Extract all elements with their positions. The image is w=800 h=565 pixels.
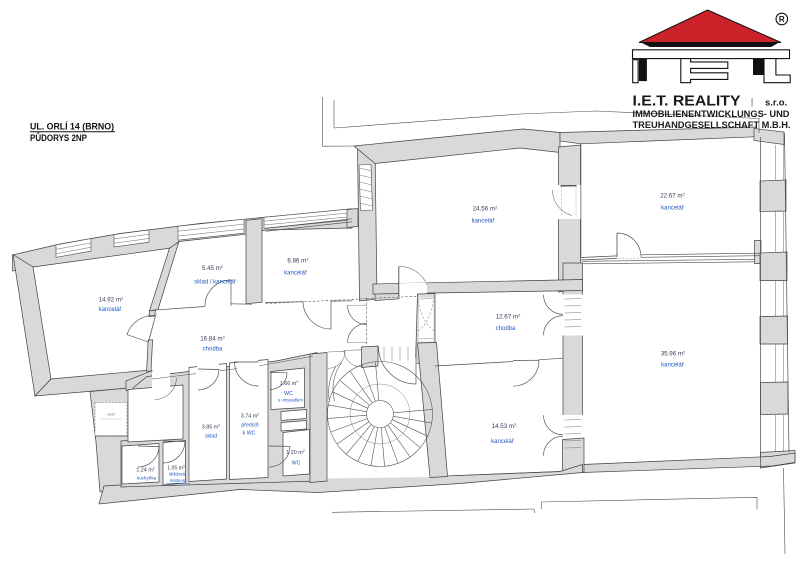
svg-text:WC: WC xyxy=(284,391,293,397)
svg-text:kuchyňka: kuchyňka xyxy=(137,476,157,481)
svg-text:úklidová: úklidová xyxy=(169,472,186,477)
svg-text:k WC: k WC xyxy=(243,430,256,436)
svg-text:kancelář: kancelář xyxy=(661,205,685,211)
svg-text:1.24 m2: 1.24 m2 xyxy=(136,467,154,474)
svg-text:kancelář: kancelář xyxy=(472,219,496,225)
svg-text:sklad: sklad xyxy=(205,433,217,439)
svg-text:s.r.o.: s.r.o. xyxy=(765,98,787,109)
svg-text:16.84 m2: 16.84 m2 xyxy=(200,335,225,343)
svg-text:sklad / kancelář: sklad / kancelář xyxy=(194,280,237,286)
svg-text:R: R xyxy=(779,15,785,24)
svg-text:3.85 m2: 3.85 m2 xyxy=(202,423,220,430)
svg-text:1.20 m2: 1.20 m2 xyxy=(286,449,304,456)
svg-text:kancelář: kancelář xyxy=(661,363,685,369)
svg-text:1.66 m2: 1.66 m2 xyxy=(280,380,298,387)
svg-text:kancelář: kancelář xyxy=(99,307,123,313)
svg-text:chodba: chodba xyxy=(203,347,223,353)
svg-text:výtah: výtah xyxy=(107,413,116,417)
svg-text:35.96 m2: 35.96 m2 xyxy=(661,350,686,358)
svg-text:5.45 m2: 5.45 m2 xyxy=(202,264,224,272)
svg-text:s umyvadlem: s umyvadlem xyxy=(278,397,303,402)
svg-text:6.86 m2: 6.86 m2 xyxy=(287,257,309,265)
svg-text:14.53 m2: 14.53 m2 xyxy=(492,422,517,430)
svg-text:1.05 m2: 1.05 m2 xyxy=(167,464,185,471)
svg-text:předsíň: předsíň xyxy=(241,423,258,429)
svg-text:|: | xyxy=(751,97,753,107)
svg-text:14.92 m2: 14.92 m2 xyxy=(99,296,124,304)
svg-text:24.56 m2: 24.56 m2 xyxy=(473,204,498,212)
svg-text:I.E.T. REALITY: I.E.T. REALITY xyxy=(633,94,741,110)
svg-text:kancelář: kancelář xyxy=(284,271,308,277)
svg-text:chodba: chodba xyxy=(496,326,516,332)
svg-text:IMMOBILIENENTWICKLUNGS- UND: IMMOBILIENENTWICKLUNGS- UND xyxy=(633,109,790,120)
svg-text:12.67 m2: 12.67 m2 xyxy=(496,313,521,321)
svg-text:PŮDORYS 2NP: PŮDORYS 2NP xyxy=(30,132,87,143)
svg-text:22.67 m2: 22.67 m2 xyxy=(660,191,685,199)
svg-text:UL. ORLÍ 14 (BRNO): UL. ORLÍ 14 (BRNO) xyxy=(30,121,114,132)
svg-text:WC: WC xyxy=(292,460,301,466)
svg-text:místnost: místnost xyxy=(170,478,187,483)
svg-text:kancelář: kancelář xyxy=(491,439,515,445)
svg-text:TREUHANDGESELLSCHAFT M.B.H.: TREUHANDGESELLSCHAFT M.B.H. xyxy=(633,120,791,131)
svg-text:3.74 m2: 3.74 m2 xyxy=(241,413,259,420)
